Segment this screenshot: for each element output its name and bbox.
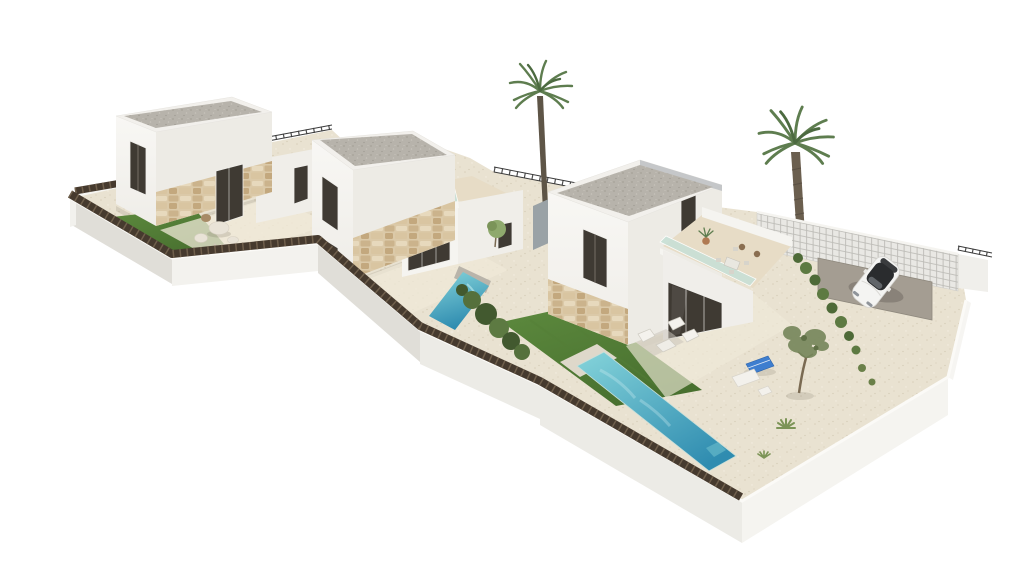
villa-1 — [116, 97, 330, 226]
metal-railing-3 — [958, 246, 992, 292]
annex-window — [294, 165, 308, 204]
plant-pot — [702, 237, 710, 245]
sliding-door — [216, 164, 243, 225]
scene-canvas — [0, 0, 1024, 576]
render-viewport — [0, 0, 1024, 576]
terrace-pouf — [739, 244, 745, 250]
decorative-rock-brown — [201, 214, 211, 222]
decorative-rock — [228, 237, 239, 244]
decorative-rock — [209, 222, 229, 235]
terrace-pouf — [754, 251, 760, 257]
tree-shadow — [786, 392, 814, 400]
decorative-rock — [195, 234, 208, 243]
pebble — [451, 331, 454, 334]
